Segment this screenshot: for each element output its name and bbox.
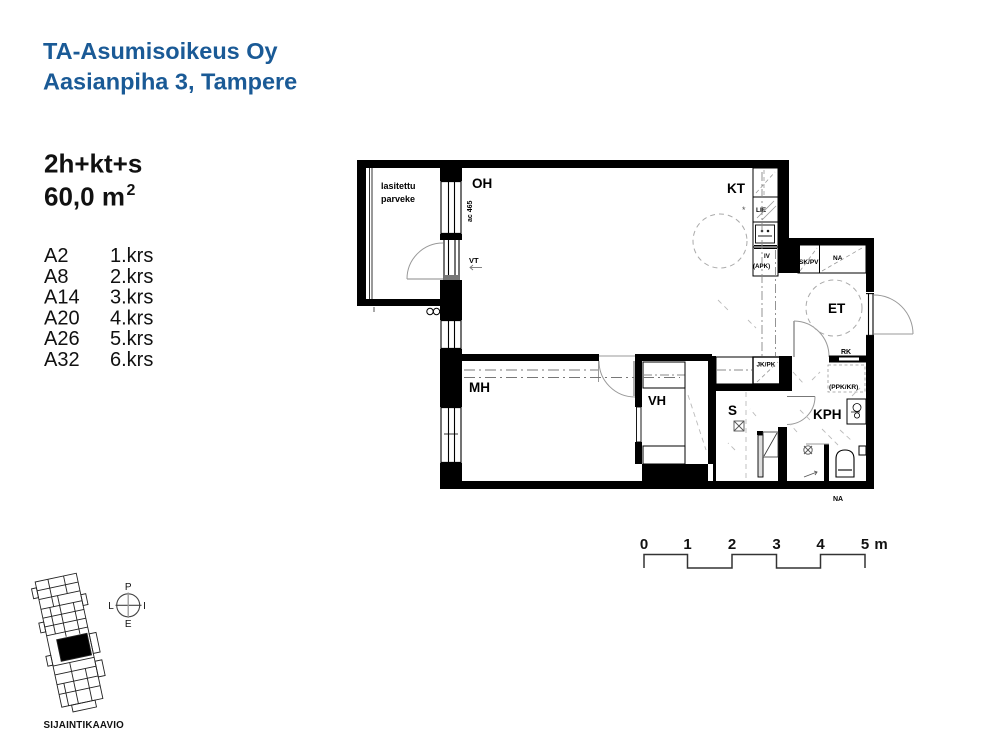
- svg-text:E: E: [125, 619, 132, 630]
- svg-text:2: 2: [127, 182, 136, 199]
- svg-text:RK: RK: [841, 349, 851, 356]
- svg-text:I: I: [143, 601, 146, 612]
- svg-text:KPH: KPH: [813, 407, 842, 422]
- svg-text:3: 3: [772, 536, 780, 553]
- svg-text:LIE: LIE: [756, 207, 767, 214]
- svg-text:3.krs: 3.krs: [110, 287, 153, 309]
- svg-text:1.krs: 1.krs: [110, 245, 153, 267]
- svg-text:60,0 m: 60,0 m: [44, 182, 125, 212]
- svg-text:S: S: [728, 403, 737, 418]
- svg-text:parveke: parveke: [381, 194, 415, 204]
- svg-text:*: *: [742, 205, 746, 215]
- svg-text:6.krs: 6.krs: [110, 349, 153, 371]
- svg-text:5.krs: 5.krs: [110, 328, 153, 350]
- svg-text:(PPK/KR): (PPK/KR): [829, 384, 858, 391]
- svg-text:A8: A8: [44, 266, 68, 288]
- svg-text:4: 4: [816, 536, 825, 553]
- svg-text:VH: VH: [648, 393, 666, 408]
- svg-text:NA: NA: [833, 255, 843, 262]
- svg-text:TA-Asumisoikeus Oy: TA-Asumisoikeus Oy: [43, 38, 278, 64]
- svg-text:2: 2: [728, 536, 736, 553]
- svg-text:5: 5: [861, 536, 869, 553]
- svg-text:2.krs: 2.krs: [110, 266, 153, 288]
- svg-text:MH: MH: [469, 380, 490, 395]
- svg-text:0: 0: [640, 536, 648, 553]
- svg-text:4.krs: 4.krs: [110, 307, 153, 329]
- svg-text:Aasianpiha 3, Tampere: Aasianpiha 3, Tampere: [43, 69, 297, 95]
- svg-text:IV: IV: [764, 253, 771, 260]
- svg-text:ET: ET: [828, 301, 846, 316]
- svg-text:VT: VT: [469, 256, 479, 265]
- svg-text:lasitettu: lasitettu: [381, 181, 416, 191]
- svg-text:A14: A14: [44, 287, 80, 309]
- svg-text:KT: KT: [727, 181, 746, 196]
- svg-text:A2: A2: [44, 245, 68, 267]
- svg-text:OH: OH: [472, 176, 492, 191]
- svg-text:L: L: [108, 601, 114, 612]
- svg-text:2h+kt+s: 2h+kt+s: [44, 149, 142, 179]
- svg-text:P: P: [125, 582, 132, 593]
- svg-text:1: 1: [683, 536, 691, 553]
- svg-text:A26: A26: [44, 328, 80, 350]
- svg-text:A32: A32: [44, 349, 80, 371]
- svg-text:A20: A20: [44, 307, 80, 329]
- svg-text:ac 465: ac 465: [467, 200, 474, 222]
- svg-text:m: m: [874, 536, 887, 553]
- svg-text:SIJAINTIKAAVIO: SIJAINTIKAAVIO: [44, 720, 125, 731]
- svg-text:NA: NA: [833, 496, 843, 503]
- svg-text:SK/PV: SK/PV: [799, 259, 819, 266]
